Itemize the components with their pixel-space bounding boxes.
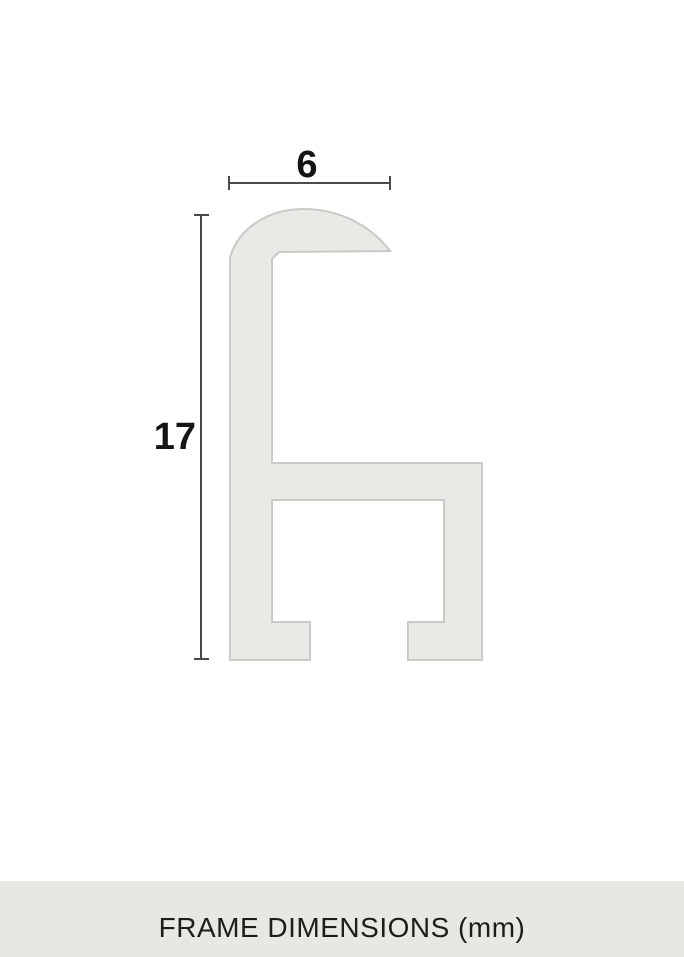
frame-profile-shape [230, 209, 482, 660]
height-dimension [194, 215, 209, 659]
height-dimension-label: 17 [154, 416, 196, 458]
product-dimension-image: 6 17 FRAME DIMENSIONS (mm) [0, 0, 684, 957]
width-dimension-label: 6 [296, 144, 317, 186]
frame-profile-diagram: 6 17 [0, 0, 684, 881]
caption-text: FRAME DIMENSIONS (mm) [159, 914, 526, 942]
caption-bar: FRAME DIMENSIONS (mm) [0, 881, 684, 957]
